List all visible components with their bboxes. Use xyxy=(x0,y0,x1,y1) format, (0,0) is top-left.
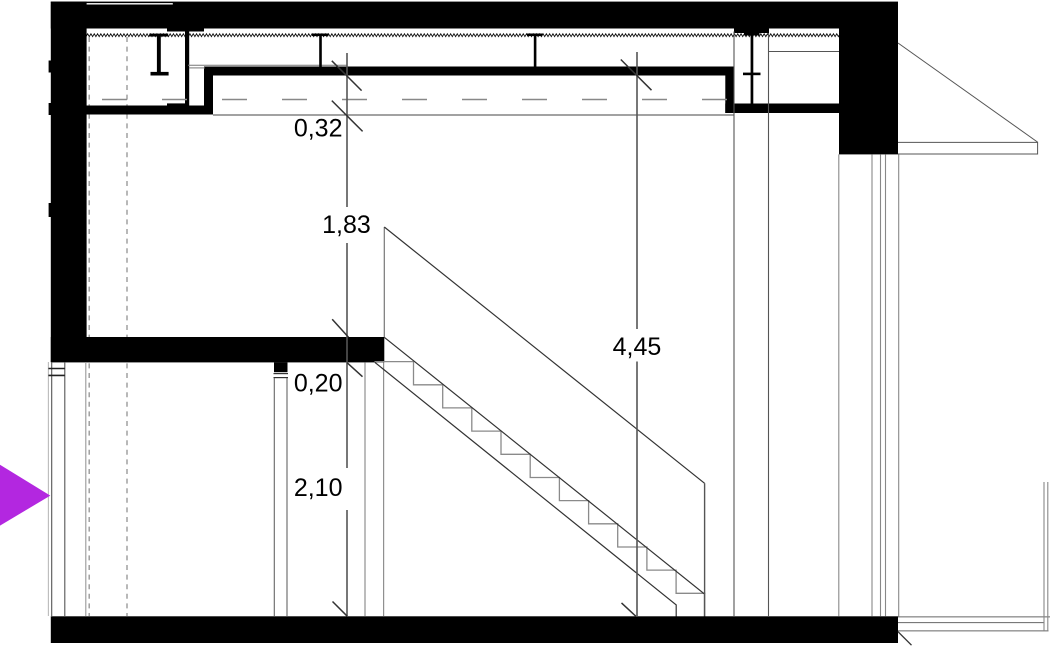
svg-text:1,83: 1,83 xyxy=(322,211,371,239)
svg-text:2,10: 2,10 xyxy=(294,474,343,502)
svg-text:0,32: 0,32 xyxy=(294,115,343,143)
svg-text:4,45: 4,45 xyxy=(613,333,662,361)
svg-text:0,20: 0,20 xyxy=(294,369,343,397)
